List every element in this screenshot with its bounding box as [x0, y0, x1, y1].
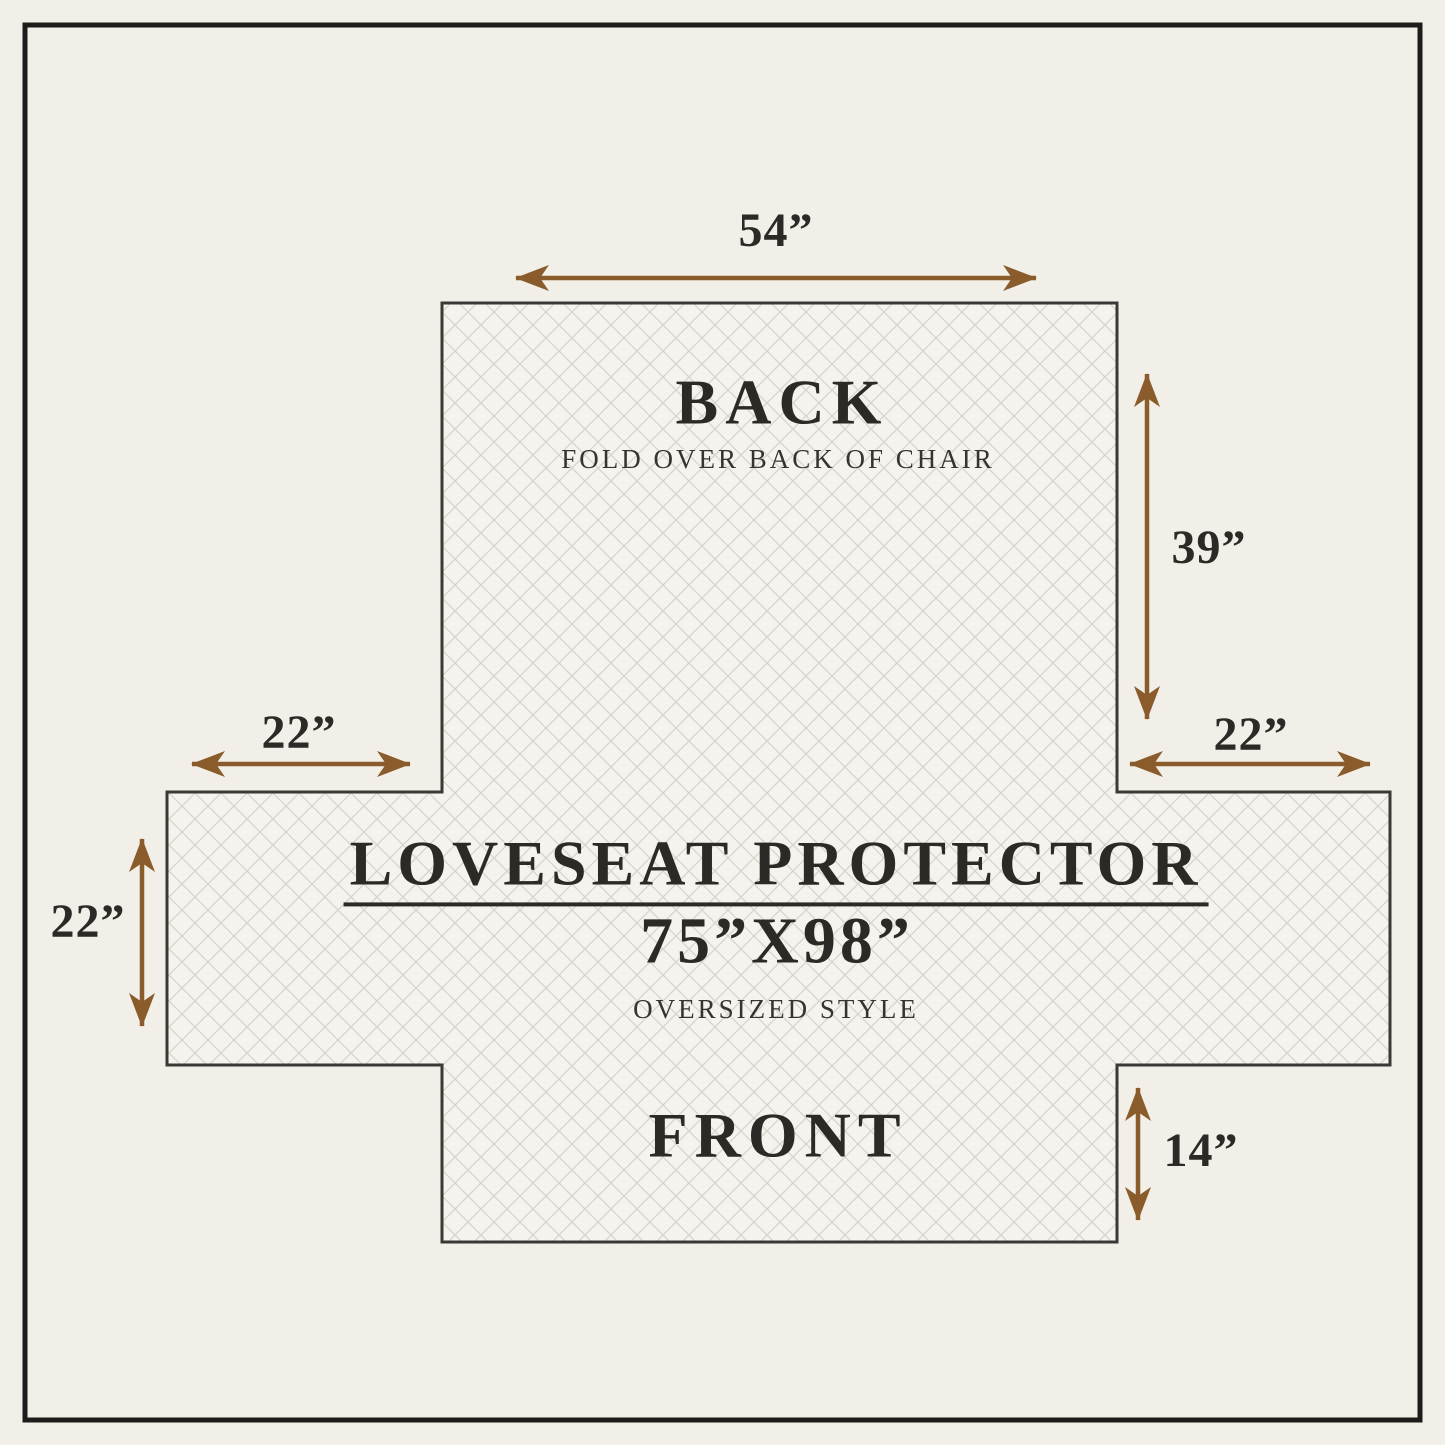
product-title: LOVESEAT PROTECTOR — [344, 829, 1209, 906]
front-section-label: FRONT — [649, 1101, 908, 1168]
back-section-note: FOLD OVER BACK OF CHAIR — [561, 445, 995, 473]
dim-label-front-height: 14” — [1164, 1126, 1239, 1176]
product-size: 75”X98” — [640, 906, 914, 975]
back-section-label: BACK — [676, 368, 889, 435]
loveseat-protector-diagram: 54” 39” 22” 22” 22” 14” BACK FOLD OVER B… — [0, 0, 1445, 1445]
dim-label-back-height: 39” — [1172, 523, 1247, 573]
dim-label-right-flap-width: 22” — [1214, 710, 1289, 760]
dim-label-left-flap-height: 22” — [51, 897, 126, 947]
dim-label-back-width: 54” — [739, 206, 814, 256]
style-note: OVERSIZED STYLE — [633, 995, 919, 1023]
dim-label-left-flap-width: 22” — [262, 708, 337, 758]
